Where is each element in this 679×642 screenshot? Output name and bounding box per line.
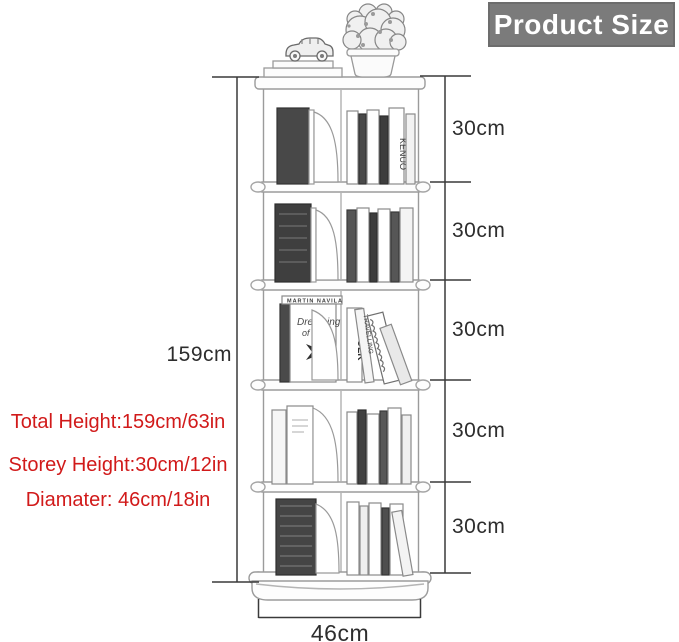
storey-height-label-3: 30cm [452,318,505,342]
storey-height-label-2: 30cm [452,219,505,243]
page-title: Product Size [488,2,675,47]
tier-3-books: MARTIN NAVILA Dreaming of Sw KINFOLK TRA… [280,296,412,385]
dimension-diameter-line [259,599,421,618]
product-size-diagram: KENUO MARTIN NAVILA Dreaming of Sw [0,0,679,642]
storey-height-label-5: 30cm [452,515,505,539]
diameter-label: 46cm [290,620,390,642]
storey-height-label-4: 30cm [452,419,505,443]
storey-height-label-1: 30cm [452,117,505,141]
tier-2-books [275,204,413,282]
toy-car [286,38,333,61]
spec-line-total-height: Total Height:159cm/63in [0,411,236,434]
page-title-text: Product Size [494,9,670,40]
tier-1-books: KENUO [277,108,415,184]
tier-5-books [276,499,413,576]
spec-text-block: Total Height:159cm/63in Storey Height:30… [0,0,236,642]
top-pedestal [264,61,342,77]
spec-line-storey-height: Storey Height:30cm/12in [0,454,236,477]
potted-plant [343,4,406,77]
spec-line-diameter: Diamater: 46cm/18in [0,489,236,512]
